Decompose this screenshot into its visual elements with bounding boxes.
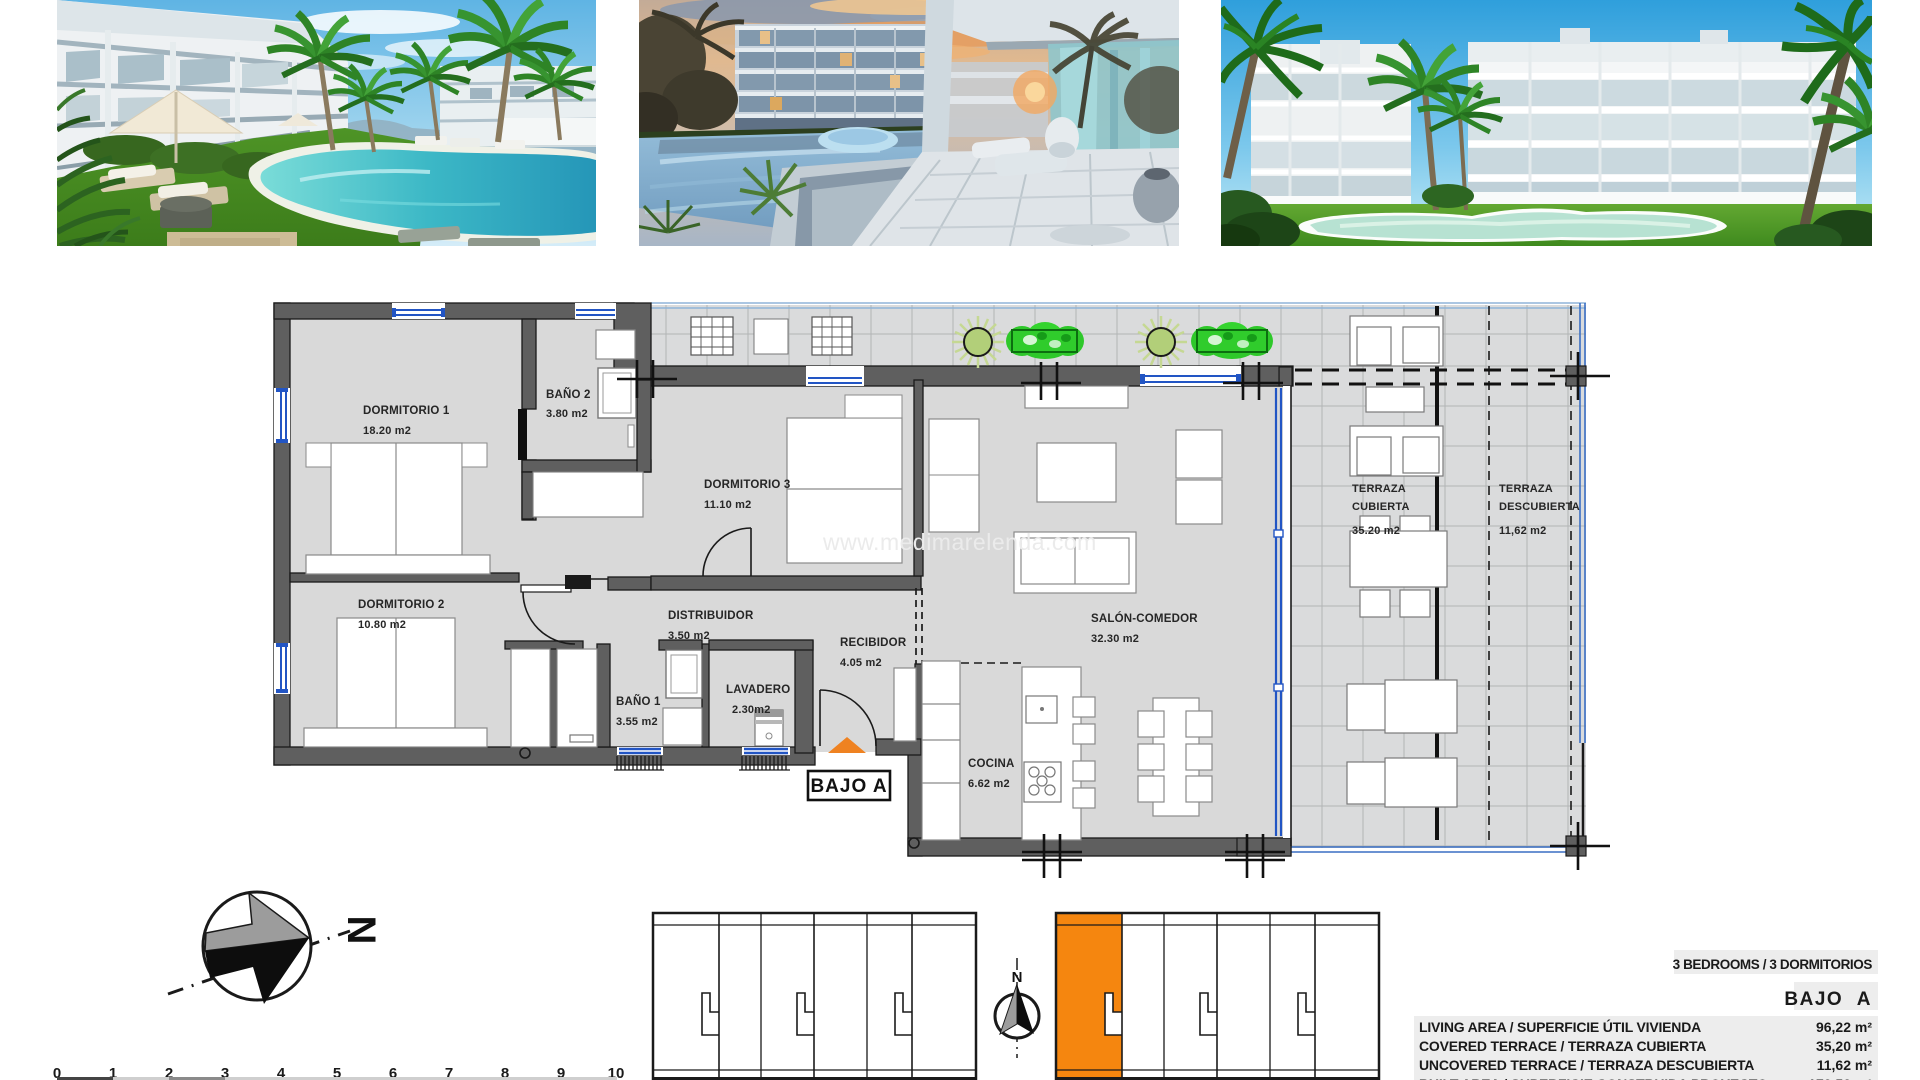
svg-text:TERRAZA: TERRAZA [1499, 483, 1553, 495]
svg-text:DESCUBIERTA: DESCUBIERTA [1499, 501, 1580, 513]
svg-text:BAÑO 1: BAÑO 1 [616, 695, 661, 708]
svg-text:35.20 m2: 35.20 m2 [1352, 525, 1400, 537]
svg-text:BAJO A: BAJO A [1784, 989, 1872, 1010]
svg-text:RECIBIDOR: RECIBIDOR [840, 637, 907, 649]
svg-text:6.62 m2: 6.62 m2 [968, 778, 1010, 790]
svg-text:BAÑO 2: BAÑO 2 [546, 388, 591, 401]
svg-text:UNCOVERED TERRACE / TERRAZA DE: UNCOVERED TERRACE / TERRAZA DESCUBIERTA [1419, 1057, 1754, 1073]
svg-text:18.20 m2: 18.20 m2 [363, 425, 411, 437]
svg-text:BUILT AREA / SUPERFICIE CONSTR: BUILT AREA / SUPERFICIE CONSTRUIDA PROYE… [1419, 1076, 1768, 1080]
svg-text:TERRAZA: TERRAZA [1352, 483, 1406, 495]
svg-text:DORMITORIO 2: DORMITORIO 2 [358, 599, 445, 611]
svg-text:170,50 m²: 170,50 m² [1808, 1076, 1872, 1080]
svg-text:3.55 m2: 3.55 m2 [616, 716, 658, 728]
svg-text:SALÓN-COMEDOR: SALÓN-COMEDOR [1091, 612, 1198, 625]
svg-text:32.30 m2: 32.30 m2 [1091, 633, 1139, 645]
svg-text:N: N [339, 916, 383, 945]
svg-text:35,20 m²: 35,20 m² [1816, 1038, 1872, 1054]
svg-text:N: N [1012, 969, 1023, 986]
svg-text:3.80 m2: 3.80 m2 [546, 408, 588, 420]
svg-text:DORMITORIO 1: DORMITORIO 1 [363, 405, 450, 417]
svg-text:COVERED TERRACE / TERRAZA CUBI: COVERED TERRACE / TERRAZA CUBIERTA [1419, 1038, 1706, 1054]
svg-text:DISTRIBUIDOR: DISTRIBUIDOR [668, 610, 754, 622]
svg-text:COCINA: COCINA [968, 758, 1015, 770]
svg-text:2.30m2: 2.30m2 [732, 704, 771, 716]
svg-text:3.50 m2: 3.50 m2 [668, 630, 710, 642]
svg-text:3 BEDROOMS / 3 DORMITORIOS: 3 BEDROOMS / 3 DORMITORIOS [1673, 957, 1873, 972]
svg-text:11,62 m2: 11,62 m2 [1499, 525, 1546, 537]
svg-text:4.05 m2: 4.05 m2 [840, 657, 882, 669]
svg-text:CUBIERTA: CUBIERTA [1352, 501, 1410, 513]
svg-text:LIVING AREA / SUPERFICIE ÚTIL: LIVING AREA / SUPERFICIE ÚTIL VIVIENDA [1419, 1018, 1701, 1035]
svg-text:11.10 m2: 11.10 m2 [704, 499, 751, 511]
svg-text:96,22 m²: 96,22 m² [1816, 1019, 1872, 1035]
svg-text:DORMITORIO 3: DORMITORIO 3 [704, 479, 791, 491]
svg-text:LAVADERO: LAVADERO [726, 684, 790, 696]
svg-text:10.80 m2: 10.80 m2 [358, 619, 406, 631]
svg-text:BAJO A: BAJO A [810, 776, 887, 797]
svg-text:www.medimarelenda.com: www.medimarelenda.com [822, 529, 1097, 555]
svg-text:11,62 m²: 11,62 m² [1817, 1057, 1873, 1073]
